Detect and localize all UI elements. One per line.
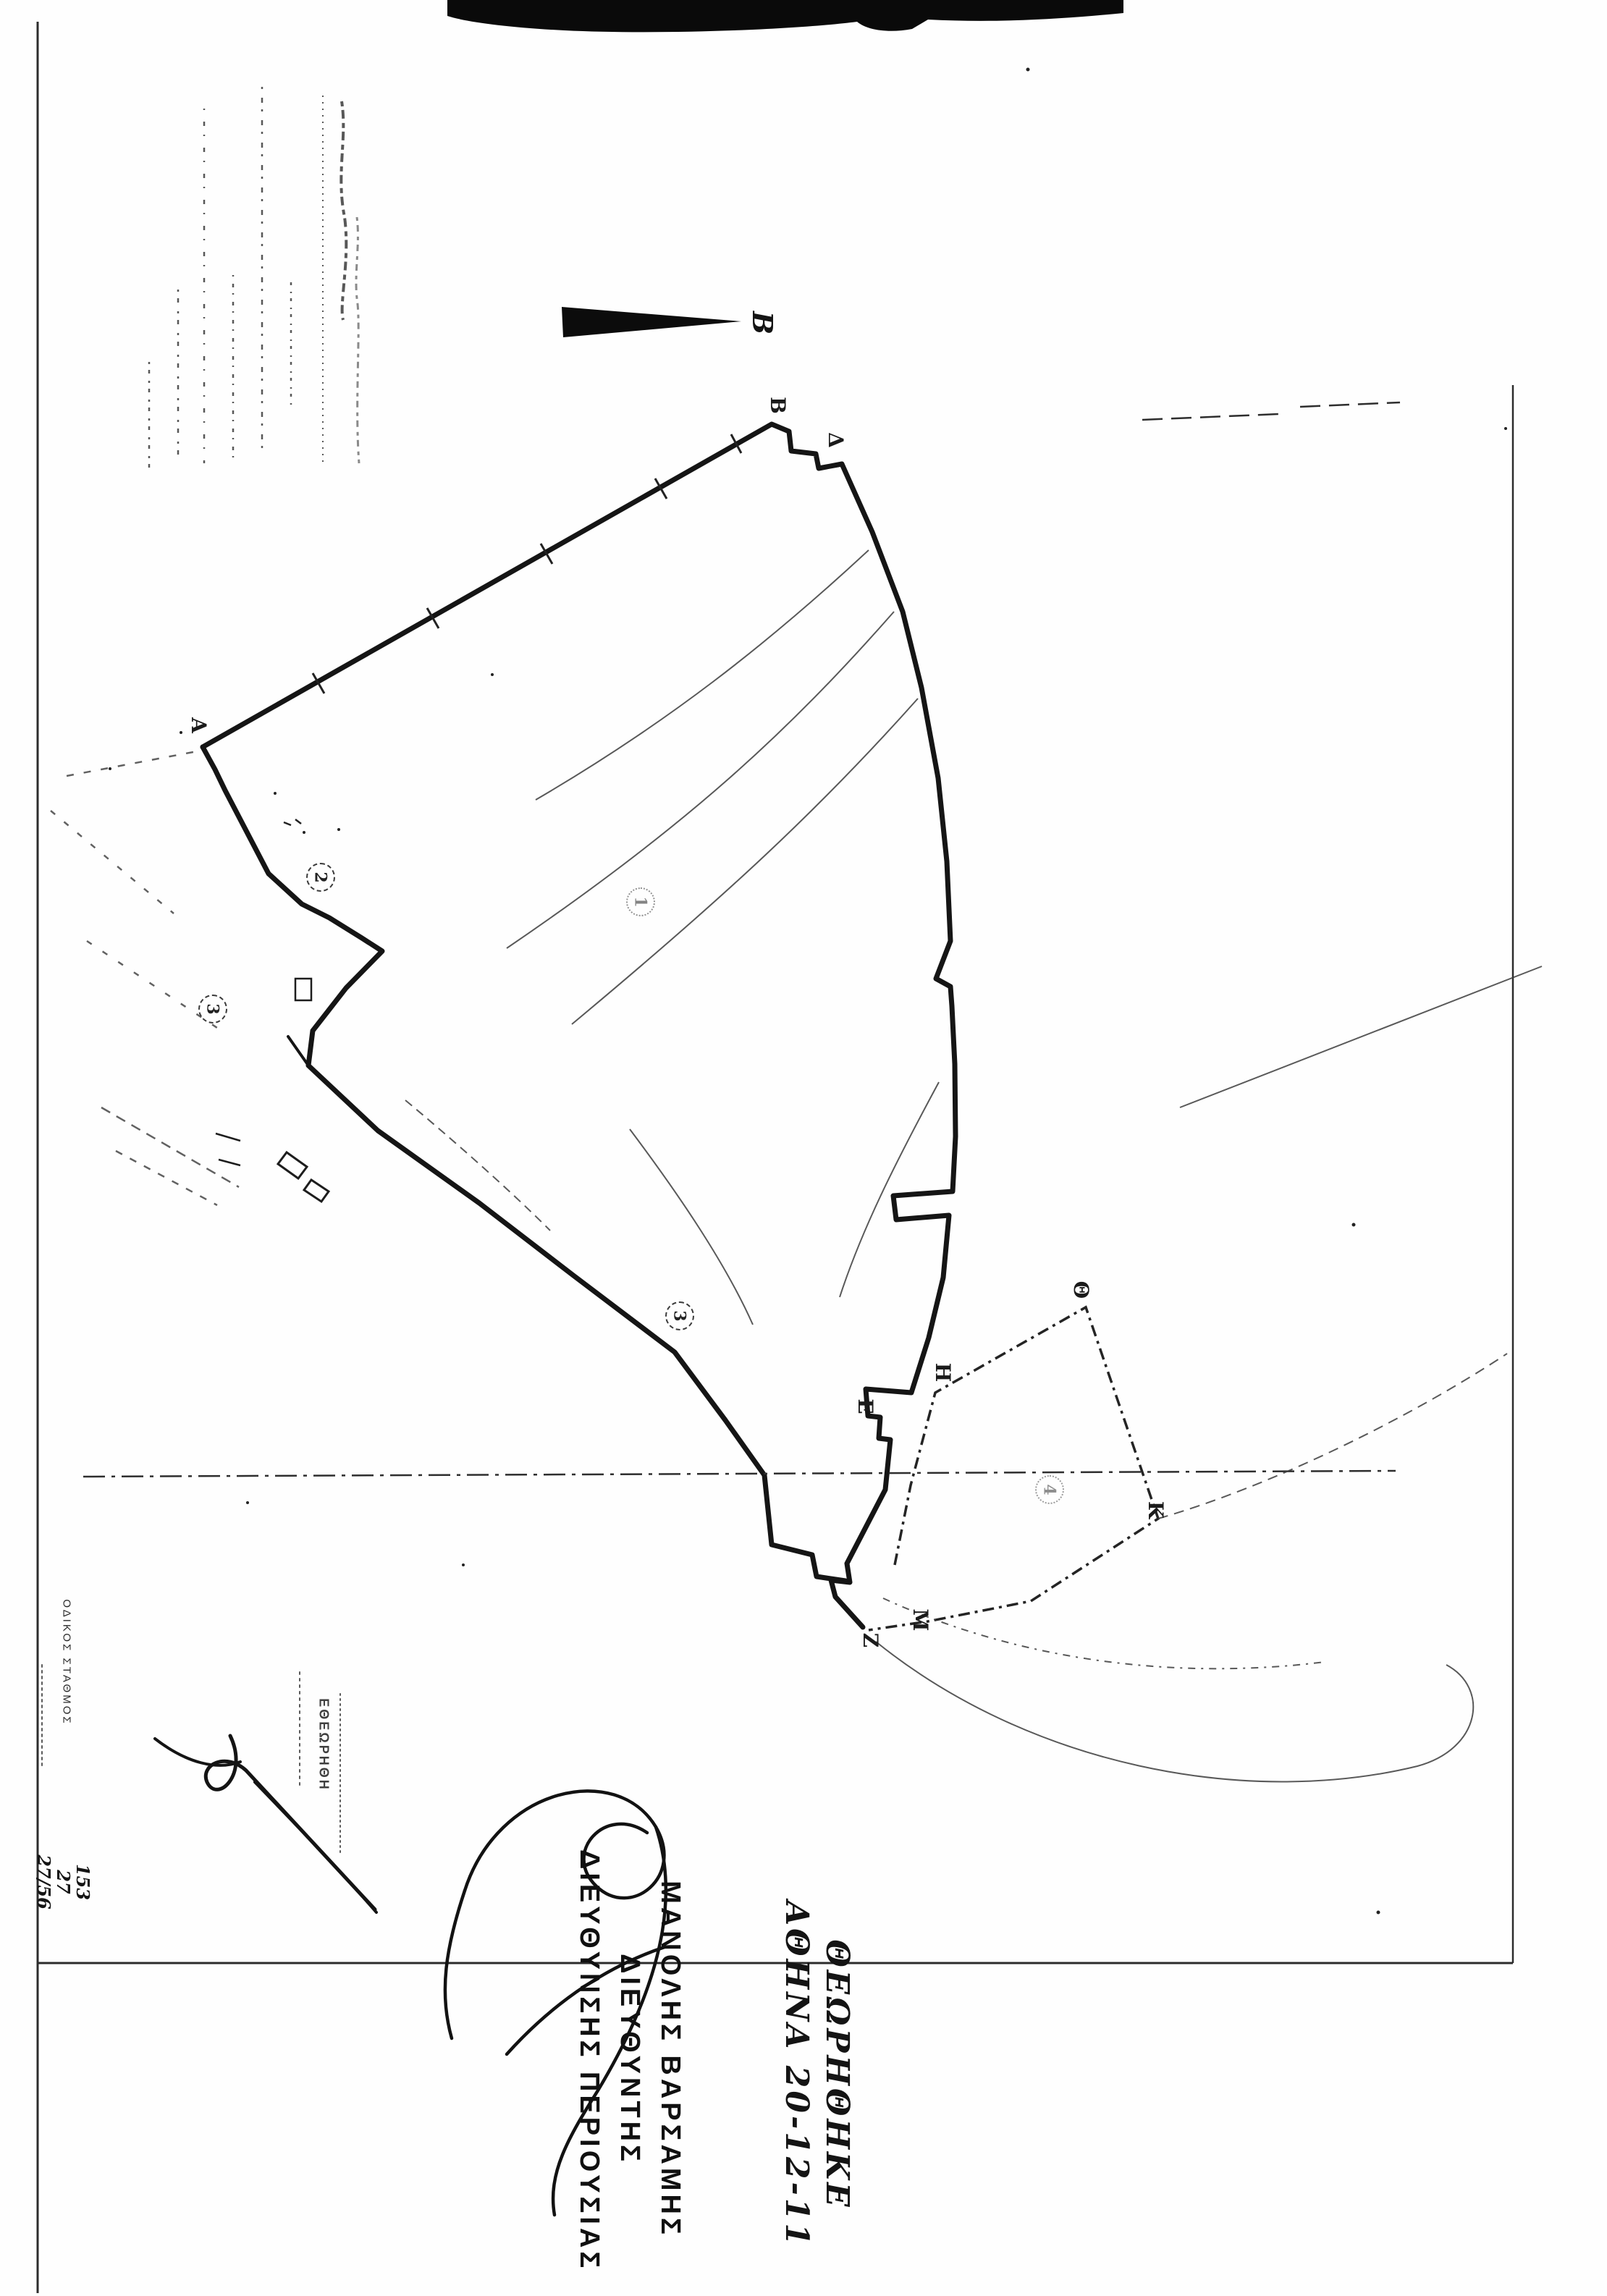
file-number-1: 153 xyxy=(74,1831,93,1933)
officer-name: ΜΑΝΟΛΗΣ ΒΑΡΣΑΜΗΣ xyxy=(650,1849,691,2269)
review-note: ΘΕΩΡΗΘΗΚΕ ΑΘΗΝΑ 20-12-11 xyxy=(777,1879,856,2270)
scan-artifact-top-bar xyxy=(447,0,1123,32)
parcel-number-4: 4 xyxy=(1035,1475,1064,1504)
drawing-frame xyxy=(38,22,1513,2293)
parcel4-boundary xyxy=(869,1307,1158,1630)
vertex-label-mu: Μ xyxy=(905,1604,937,1636)
north-arrow-icon xyxy=(562,307,741,337)
small-stamp-word: ΕΘΕΩΡΗΘΗ xyxy=(316,1673,332,1818)
old-boundaries xyxy=(51,751,239,1205)
contour-lines xyxy=(405,550,1542,1782)
file-numbers: 153 27 27/56 xyxy=(34,1831,93,1933)
vertex-label-alpha: Α xyxy=(183,709,215,741)
alignment-line xyxy=(83,402,1400,1477)
review-note-line2: ΑΘΗΝΑ 20-12-11 xyxy=(776,1879,817,2270)
vertex-label-epsilon: Ε xyxy=(850,1390,882,1422)
vertex-label-zeta: Ζ xyxy=(855,1624,887,1656)
scan-specks xyxy=(109,68,1507,1915)
vertex-label-kappa: Κ xyxy=(1140,1494,1172,1526)
building-footprints xyxy=(216,979,329,1202)
officer-stamp: ΜΑΝΟΛΗΣ ΒΑΡΣΑΜΗΣ ΔΙΕΥΘΥΝΤΗΣ ΔΙΕΥΘΥΝΣΗΣ Π… xyxy=(568,1849,691,2269)
vertex-label-beta: Β xyxy=(762,389,794,421)
file-number-3: 27/56 xyxy=(35,1831,54,1933)
scanned-survey-map-page: Β Α Β Δ Ε Η Θ Ζ Κ Μ 2 1 3 3 4 ΘΕΩΡΗΘΗΚΕ … xyxy=(0,0,1607,2296)
property-boundary xyxy=(203,424,956,1627)
officer-department: ΔΙΕΥΘΥΝΣΗΣ ΠΕΡΙΟΥΣΙΑΣ xyxy=(569,1849,610,2269)
officer-title: ΔΙΕΥΘΥΝΤΗΣ xyxy=(610,1849,650,2269)
vertex-label-eta: Η xyxy=(927,1356,959,1388)
margin-note: ΟΔΙΚΟΣ ΣΤΑΘΜΟΣ xyxy=(61,1587,73,1739)
parcel-number-3-left: 3 xyxy=(198,995,227,1024)
vertex-label-theta: Θ xyxy=(1066,1274,1097,1306)
vertex-label-delta: Δ xyxy=(820,424,852,456)
file-number-2: 27 xyxy=(54,1831,74,1933)
parcel-number-3-strip: 3 xyxy=(665,1301,694,1330)
legend-scribbles xyxy=(149,87,359,469)
parcel-number-2: 2 xyxy=(306,863,335,892)
parcel-number-1: 1 xyxy=(626,887,655,916)
review-note-line1: ΘΕΩΡΗΘΗΚΕ xyxy=(817,1879,857,2270)
north-arrow-label: Β xyxy=(747,307,779,339)
